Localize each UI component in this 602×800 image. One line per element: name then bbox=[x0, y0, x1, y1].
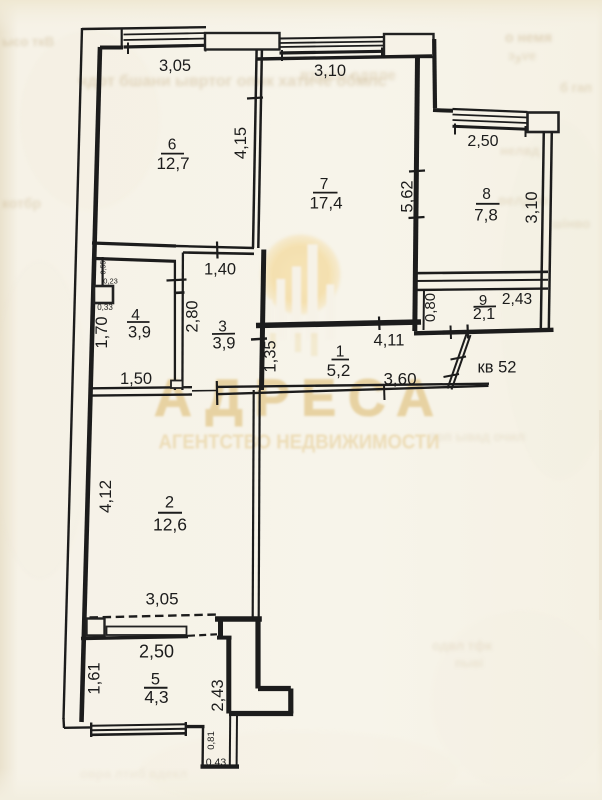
svg-text:5: 5 bbox=[151, 670, 160, 688]
svg-text:12,7: 12,7 bbox=[156, 154, 189, 173]
svg-text:2: 2 bbox=[165, 493, 174, 511]
svg-text:3,05: 3,05 bbox=[145, 589, 178, 608]
svg-text:1,40: 1,40 bbox=[204, 260, 236, 278]
svg-text:ысо ткВ: ысо ткВ bbox=[2, 34, 54, 49]
svg-text:3,10: 3,10 bbox=[523, 191, 541, 223]
svg-text:1,70: 1,70 bbox=[93, 316, 111, 348]
svg-text:АГЕНТСТВО НЕДВИЖИМОСТИ: АГЕНТСТВО НЕДВИЖИМОСТИ bbox=[159, 432, 440, 454]
svg-text:3,9: 3,9 bbox=[213, 334, 236, 352]
svg-text:7: 7 bbox=[320, 176, 329, 193]
svg-text:17,4: 17,4 bbox=[309, 193, 342, 212]
svg-text:эوve: эوve bbox=[508, 48, 536, 64]
svg-text:пыві: пыві bbox=[455, 656, 483, 670]
svg-text:нелвд: нелвд bbox=[500, 143, 540, 158]
svg-text:1,35: 1,35 bbox=[261, 340, 279, 372]
svg-text:4,3: 4,3 bbox=[144, 687, 168, 707]
svg-text:2,50: 2,50 bbox=[139, 641, 174, 661]
svg-text:1,61: 1,61 bbox=[85, 662, 103, 694]
svg-text:одвл тфк: одвл тфк bbox=[432, 638, 492, 653]
svg-text:0,23: 0,23 bbox=[103, 277, 118, 286]
svg-text:овра лтиб вдекл: овра лтиб вдекл bbox=[80, 766, 187, 781]
svg-text:5,2: 5,2 bbox=[327, 361, 351, 380]
svg-text:б гап: б гап bbox=[560, 80, 592, 95]
svg-text:2,1: 2,1 bbox=[473, 306, 495, 323]
svg-text:о немя: о немя bbox=[505, 29, 552, 45]
svg-text:7,8: 7,8 bbox=[474, 205, 498, 224]
svg-text:2,50: 2,50 bbox=[467, 133, 498, 150]
svg-text:0,33: 0,33 bbox=[97, 303, 113, 312]
svg-text:6: 6 bbox=[168, 136, 177, 153]
svg-text:котбр: котбр bbox=[2, 195, 41, 211]
svg-text:2,43: 2,43 bbox=[209, 679, 227, 711]
svg-text:шінво: шінво bbox=[552, 216, 590, 231]
svg-text:0,81: 0,81 bbox=[206, 731, 217, 750]
svg-text:0,80: 0,80 bbox=[422, 293, 439, 322]
svg-text:8: 8 bbox=[482, 186, 491, 203]
svg-text:4,12: 4,12 bbox=[96, 480, 115, 513]
svg-text:2,80: 2,80 bbox=[183, 300, 201, 332]
svg-text:1: 1 bbox=[336, 343, 345, 360]
svg-text:3,10: 3,10 bbox=[314, 62, 346, 80]
svg-text:3,60: 3,60 bbox=[383, 369, 416, 388]
svg-text:0,55: 0,55 bbox=[100, 261, 107, 275]
svg-text:кв 52: кв 52 bbox=[478, 358, 517, 376]
svg-text:3,05: 3,05 bbox=[159, 57, 191, 75]
svg-text:1,50: 1,50 bbox=[120, 370, 152, 388]
svg-text:4,11: 4,11 bbox=[374, 331, 405, 349]
svg-text:лоп ывад очил: лоп ывад очил bbox=[428, 429, 525, 444]
svg-text:3,9: 3,9 bbox=[128, 323, 151, 341]
svg-text:5,62: 5,62 bbox=[398, 180, 416, 212]
svg-text:4,15: 4,15 bbox=[232, 127, 250, 159]
svg-text:2,43: 2,43 bbox=[502, 291, 532, 308]
svg-text:0,43: 0,43 bbox=[206, 757, 227, 769]
svg-text:12,6: 12,6 bbox=[153, 515, 187, 535]
